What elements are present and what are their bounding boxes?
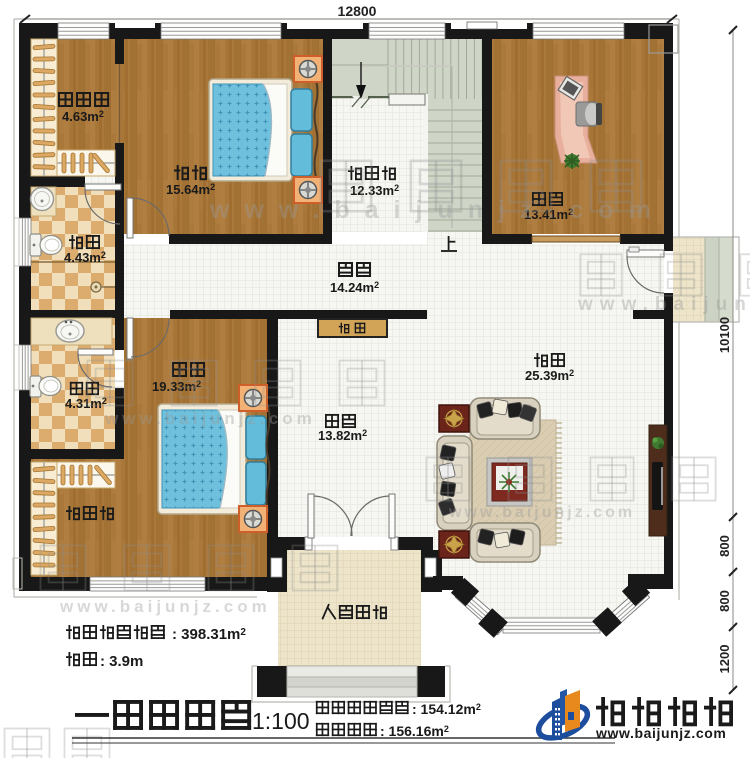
svg-text:4.63m2: 4.63m2 bbox=[62, 109, 104, 124]
svg-text:www.baijunjz.com: www.baijunjz.com bbox=[595, 725, 726, 741]
svg-text:www.baijunjz.com: www.baijunjz.com bbox=[104, 409, 316, 428]
svg-text:www.baijunjz.com: www.baijunjz.com bbox=[59, 597, 271, 616]
svg-text:14.24m2: 14.24m2 bbox=[330, 280, 379, 295]
svg-text:25.39m2: 25.39m2 bbox=[525, 368, 574, 383]
svg-text:: 156.16m2: : 156.16m2 bbox=[380, 723, 449, 739]
svg-text:www.baijunjz.com: www.baijunjz.com bbox=[448, 504, 635, 521]
svg-text:800: 800 bbox=[717, 535, 732, 557]
svg-text:10100: 10100 bbox=[717, 317, 732, 353]
svg-text:www.baijunjz.com: www.baijunjz.com bbox=[577, 294, 750, 315]
svg-text:15.64m2: 15.64m2 bbox=[166, 182, 215, 197]
svg-text:: 3.9m: : 3.9m bbox=[100, 653, 143, 670]
svg-text:www.baijunjz.com: www.baijunjz.com bbox=[209, 196, 666, 224]
svg-text:1200: 1200 bbox=[717, 645, 732, 674]
svg-text:4.43m2: 4.43m2 bbox=[64, 250, 106, 265]
svg-text:: 398.31m2: : 398.31m2 bbox=[172, 626, 246, 643]
svg-text:13.82m2: 13.82m2 bbox=[318, 428, 367, 443]
svg-text:1:100: 1:100 bbox=[252, 708, 310, 734]
svg-text:12800: 12800 bbox=[338, 3, 377, 19]
svg-text:800: 800 bbox=[717, 590, 732, 612]
svg-text:: 154.12m2: : 154.12m2 bbox=[412, 701, 481, 717]
